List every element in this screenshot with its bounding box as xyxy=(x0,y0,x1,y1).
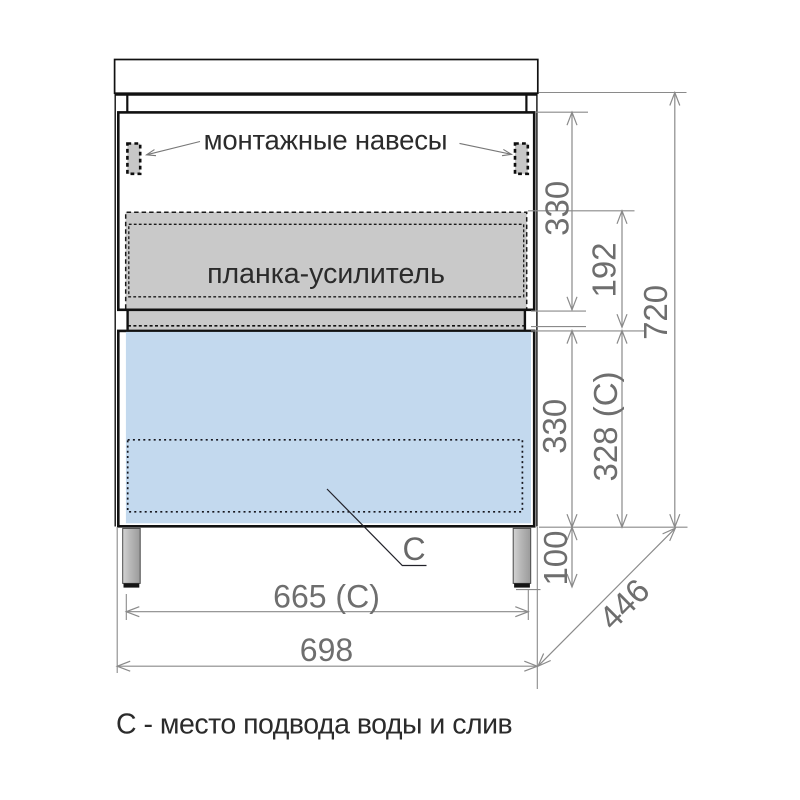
svg-text:100: 100 xyxy=(537,530,574,585)
svg-text:330: 330 xyxy=(536,399,573,454)
svg-text:монтажные навесы: монтажные навесы xyxy=(204,125,448,156)
svg-text:698: 698 xyxy=(300,632,353,668)
svg-text:720: 720 xyxy=(637,285,674,340)
svg-text:192: 192 xyxy=(586,242,623,297)
svg-text:планка-усилитель: планка-усилитель xyxy=(207,258,445,290)
svg-text:С: С xyxy=(402,531,425,567)
svg-text:330: 330 xyxy=(539,181,576,236)
svg-text:С - место подвода воды и слив: С - место подвода воды и слив xyxy=(116,709,512,741)
svg-text:328 (С): 328 (С) xyxy=(587,371,624,481)
svg-text:665 (С): 665 (С) xyxy=(273,579,380,615)
